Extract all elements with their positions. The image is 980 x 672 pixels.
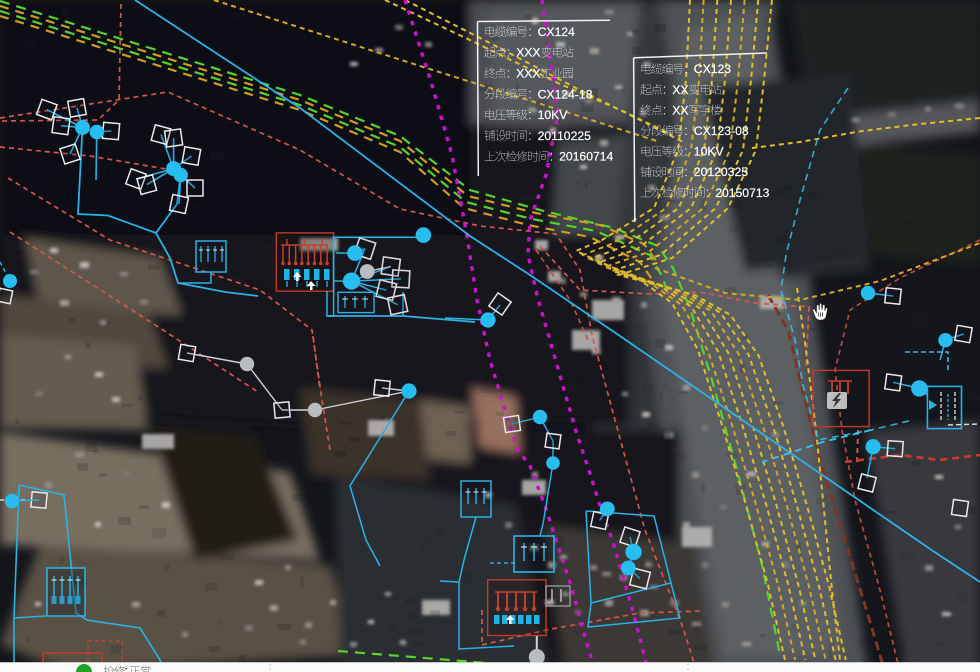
svg-text:XXX: XXX bbox=[516, 67, 540, 81]
svg-text::: : bbox=[125, 664, 128, 672]
svg-text:CX123: CX123 bbox=[694, 62, 731, 76]
svg-text:CX123-08: CX123-08 bbox=[694, 124, 749, 138]
svg-text:20150713: 20150713 bbox=[715, 186, 769, 200]
svg-text:20160714: 20160714 bbox=[559, 150, 613, 164]
svg-text:XXX: XXX bbox=[516, 46, 540, 60]
svg-text:10KV: 10KV bbox=[538, 108, 569, 122]
svg-text:CX124: CX124 bbox=[538, 25, 575, 39]
svg-text:CX124-18: CX124-18 bbox=[538, 87, 593, 101]
svg-text:10KV: 10KV bbox=[694, 145, 725, 159]
svg-text:XX: XX bbox=[672, 83, 688, 97]
svg-text:20110225: 20110225 bbox=[538, 129, 592, 143]
svg-text:XX: XX bbox=[672, 103, 688, 117]
svg-text:20120325: 20120325 bbox=[694, 165, 748, 179]
